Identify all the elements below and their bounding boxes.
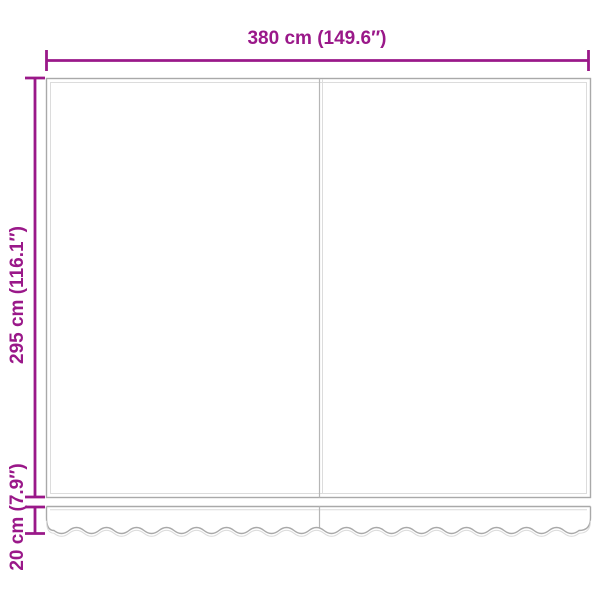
diagram-canvas: 380 cm (149.6″) 295 cm (116.1″) 20 cm (7…	[0, 0, 600, 600]
valance	[47, 507, 591, 537]
height-dimension-label: 295 cm (116.1″)	[7, 226, 28, 364]
fabric-panel	[47, 79, 591, 498]
panel-inner-hem	[51, 83, 587, 494]
valance-dimension-label: 20 cm (7.9″)	[7, 463, 28, 570]
dimension-annotations	[25, 50, 589, 534]
valance-scalloped-edge	[47, 507, 591, 534]
valance-scalloped-edge-shadow	[47, 521, 591, 537]
panel-outline	[47, 79, 591, 498]
width-dimension-label: 380 cm (149.6″)	[247, 28, 386, 49]
product-dimension-diagram: 380 cm (149.6″) 295 cm (116.1″) 20 cm (7…	[0, 0, 600, 600]
dimension-labels: 380 cm (149.6″) 295 cm (116.1″) 20 cm (7…	[7, 28, 387, 571]
